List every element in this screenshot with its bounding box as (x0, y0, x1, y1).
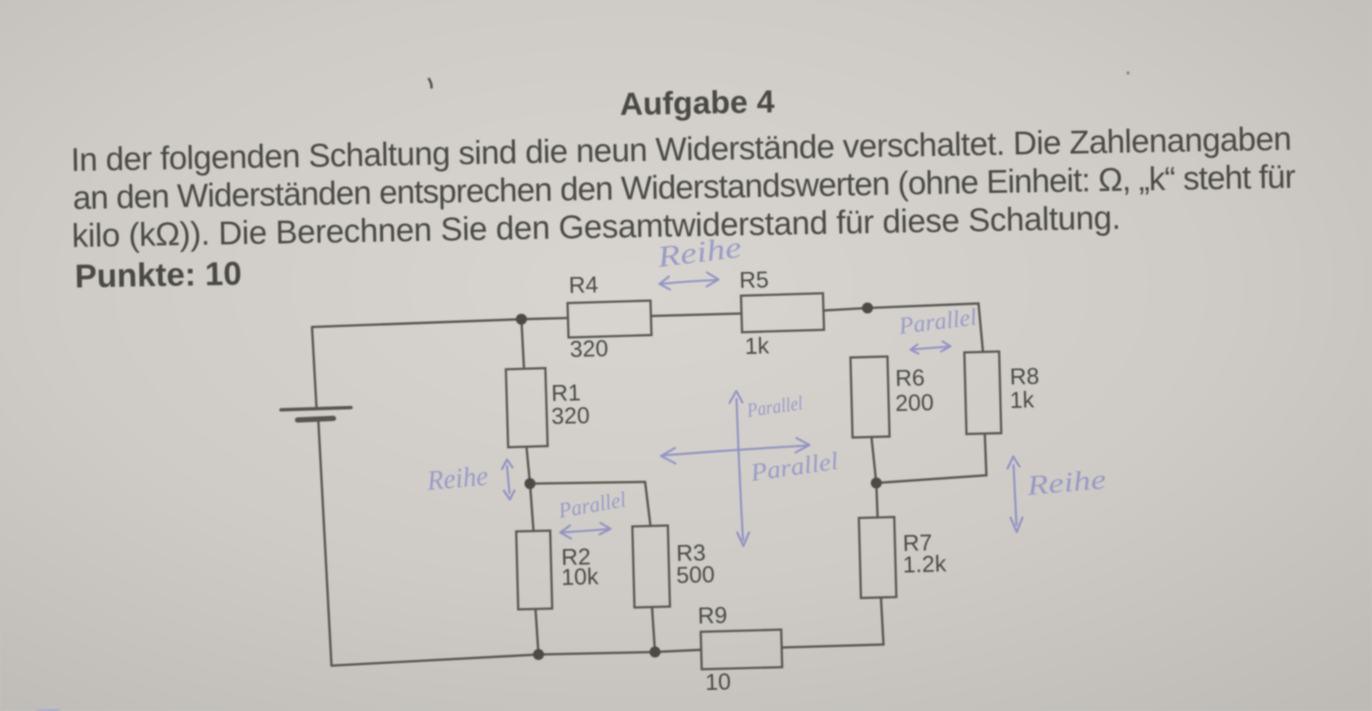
svg-text:1.2k: 1.2k (902, 550, 947, 577)
svg-text:10k: 10k (561, 563, 599, 590)
svg-text:10: 10 (705, 668, 731, 695)
svg-text:Aufgabe 4: Aufgabe 4 (619, 83, 774, 122)
svg-text:1k: 1k (744, 332, 769, 359)
svg-text:Punkte: 10: Punkte: 10 (74, 255, 242, 295)
svg-text:R6: R6 (895, 364, 925, 391)
svg-text:320: 320 (551, 402, 590, 429)
svg-text:R9: R9 (697, 602, 727, 629)
svg-text:R4: R4 (568, 271, 598, 298)
svg-text:1k: 1k (1009, 386, 1034, 413)
svg-text:Reihe: Reihe (425, 461, 489, 497)
svg-text:200: 200 (895, 389, 934, 416)
svg-text:R5: R5 (739, 266, 769, 293)
svg-text:R8: R8 (1009, 363, 1039, 390)
svg-text:500: 500 (676, 561, 715, 588)
svg-text:320: 320 (569, 335, 608, 362)
